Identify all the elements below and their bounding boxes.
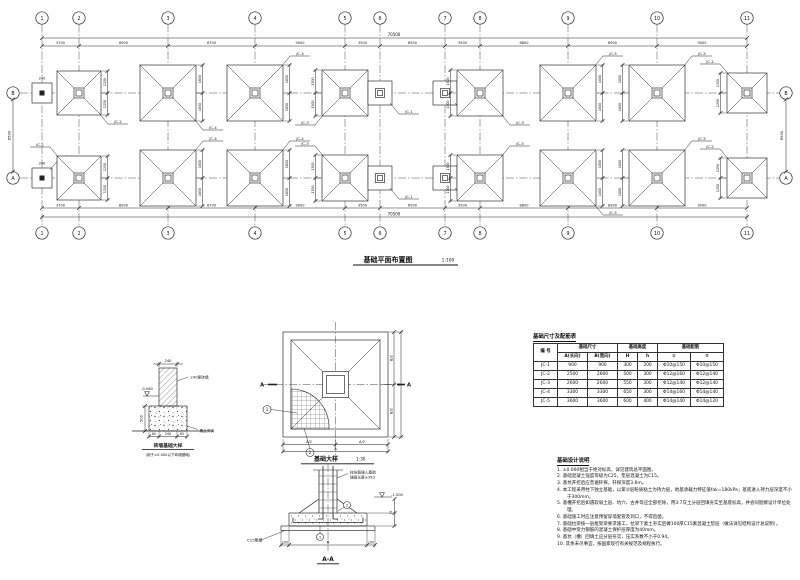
svg-text:240: 240 xyxy=(39,77,45,81)
svg-text:1650: 1650 xyxy=(198,188,202,196)
table-cell: 3600 xyxy=(558,398,588,407)
svg-text:11: 11 xyxy=(744,16,750,22)
svg-text:1800: 1800 xyxy=(598,103,602,111)
col-header-rebar: 基础配筋 xyxy=(658,344,724,353)
footing-table-title: 基础尺寸及配筋表 xyxy=(533,332,576,342)
col-subheader-b: B(宽向) xyxy=(588,353,618,362)
svg-text:1300: 1300 xyxy=(446,185,450,193)
svg-text:1650: 1650 xyxy=(285,188,289,196)
svg-text:1800: 1800 xyxy=(618,160,622,168)
section-callout-1: 1 xyxy=(319,535,321,539)
table-cell: Φ14@160 xyxy=(658,389,691,398)
wall-bottom-dim-1: 60 xyxy=(152,432,156,436)
svg-text:JC-4: JC-4 xyxy=(208,137,217,141)
table-cell: JC-4 xyxy=(534,389,558,398)
svg-text:8900: 8900 xyxy=(608,203,617,207)
col-subheader-H: H xyxy=(618,353,638,362)
table-cell: 3300 xyxy=(558,389,588,398)
svg-text:1300: 1300 xyxy=(446,100,450,108)
svg-text:8700: 8700 xyxy=(207,203,216,207)
table-row: JC-326002600550300Φ12@140Φ12@140 xyxy=(534,380,724,389)
svg-text:JC-1: JC-1 xyxy=(404,110,412,114)
table-cell: 300 xyxy=(638,380,658,389)
svg-text:1800: 1800 xyxy=(618,75,622,83)
note-item: 6. 基础施工时应注意预留穿墙套管及洞口，不得后凿。 xyxy=(557,515,793,522)
table-row: JC-225002600500300Φ12@160Φ12@140 xyxy=(534,371,724,380)
svg-text:1: 1 xyxy=(40,16,43,22)
svg-text:JC-5: JC-5 xyxy=(697,137,706,141)
table-cell: JC-5 xyxy=(534,398,558,407)
table-cell: JC-1 xyxy=(534,362,558,371)
drawing-sheet: 11223344556677889910101111BBAA3700890087… xyxy=(0,0,800,580)
svg-text:5: 5 xyxy=(343,231,346,237)
svg-text:8700: 8700 xyxy=(207,41,216,45)
note-item: 3. 基坑开挖后应普遍钎探，钎探深度3.6m。 xyxy=(557,481,793,488)
svg-text:1650: 1650 xyxy=(285,160,289,168)
svg-text:1800: 1800 xyxy=(618,188,622,196)
svg-text:1800: 1800 xyxy=(598,75,602,83)
svg-text:JC-2: JC-2 xyxy=(705,145,713,149)
detail-caption: 基础大样 xyxy=(313,455,338,463)
svg-text:8800: 8800 xyxy=(520,203,529,207)
note-item: 5. 基槽开挖后如遇软弱土层、坑穴、古井等应全部挖除，用3:7灰土分层回填夯实至… xyxy=(557,501,793,515)
section-caption: A-A xyxy=(322,557,334,563)
svg-text:1300: 1300 xyxy=(446,162,450,170)
table-cell: 300 xyxy=(638,371,658,380)
table-cell: 300 xyxy=(638,389,658,398)
section-column-note-2: 锚固长度≥35d xyxy=(350,475,375,480)
svg-text:JC-3: JC-3 xyxy=(515,121,524,125)
svg-text:JC-2: JC-2 xyxy=(705,60,713,64)
svg-text:3700: 3700 xyxy=(56,41,65,45)
table-cell: 500 xyxy=(618,371,638,380)
detail-callout-2: 2 xyxy=(309,450,312,455)
section-dim-B: B xyxy=(327,540,330,545)
svg-text:1300: 1300 xyxy=(311,185,315,193)
table-cell: Φ10@150 xyxy=(691,362,724,371)
table-cell: Φ12@140 xyxy=(658,380,691,389)
table-row: JC-536003600600400Φ14@140Φ14@120 xyxy=(534,398,724,407)
svg-text:JC-2: JC-2 xyxy=(113,120,121,124)
wall-height-dim: 500 xyxy=(140,414,144,422)
svg-text:8900: 8900 xyxy=(608,41,617,45)
section-mark-right: A xyxy=(407,383,411,389)
svg-text:JC-1: JC-1 xyxy=(404,195,412,199)
table-cell: JC-2 xyxy=(534,371,558,380)
svg-text:JC-2: JC-2 xyxy=(35,143,43,147)
note-item: 2. 基础混凝土强度等级为C25，垫层混凝土为C15。 xyxy=(557,474,793,481)
section-dim-H: H xyxy=(388,511,393,514)
detail-dim-right-1: B/2 xyxy=(390,355,394,361)
note-item: 9. 基坑（槽）回填土应分层夯实，压实系数不小于0.94。 xyxy=(557,535,793,542)
svg-text:JC-5: JC-5 xyxy=(697,52,706,56)
table-cell: 550 xyxy=(618,380,638,389)
svg-text:3: 3 xyxy=(166,231,169,237)
svg-text:1250: 1250 xyxy=(716,164,720,172)
svg-text:JC-5: JC-5 xyxy=(608,211,617,215)
detail-scale: 1:30 xyxy=(356,457,366,462)
svg-text:1250: 1250 xyxy=(103,163,107,171)
table-cell: 2600 xyxy=(588,380,618,389)
plan-title: 基础平面布置图 xyxy=(363,255,413,264)
plan-scale: 1:100 xyxy=(442,258,455,264)
wall-bottom-dim-3: 60 xyxy=(180,432,184,436)
svg-text:9000: 9000 xyxy=(296,41,305,45)
svg-text:3500: 3500 xyxy=(358,203,367,207)
svg-text:8800: 8800 xyxy=(520,41,529,45)
section-column-note-1: 柱纵筋锚入基础 xyxy=(350,470,376,475)
detail-dim-bottom-1: A/2 xyxy=(306,440,312,444)
svg-text:1250: 1250 xyxy=(103,100,107,108)
svg-text:8900: 8900 xyxy=(119,203,128,207)
svg-text:9000: 9000 xyxy=(296,203,305,207)
table-cell: 400 xyxy=(638,398,658,407)
wall-top-dim: 240 xyxy=(165,359,173,363)
svg-text:4: 4 xyxy=(253,16,256,22)
table-cell: Φ14@140 xyxy=(658,398,691,407)
detail-dim-bottom-2: A/2 xyxy=(359,440,365,444)
svg-text:6500: 6500 xyxy=(408,203,417,207)
plan-row-dim-right: 8500 xyxy=(779,130,784,140)
section-dim-100-left: 100 xyxy=(282,540,288,544)
svg-text:1250: 1250 xyxy=(716,79,720,87)
table-cell: 300 xyxy=(618,362,638,371)
table-cell: Φ10@150 xyxy=(658,362,691,371)
wall-detail-caption-note: (用于±0.000以下砖墙基础) xyxy=(146,452,191,457)
table-cell: 2500 xyxy=(558,371,588,380)
table-cell: JC-3 xyxy=(534,380,558,389)
section-mark-left: A xyxy=(260,383,264,389)
wall-ground-note: 素土夯实 xyxy=(200,428,215,433)
col-header-height: 基础高度 xyxy=(618,344,658,353)
svg-text:8900: 8900 xyxy=(119,41,128,45)
svg-text:10: 10 xyxy=(654,231,660,237)
section-bedding-note: C15垫层 xyxy=(247,538,263,543)
col-header-id: 编 号 xyxy=(534,344,558,362)
table-cell: 900 xyxy=(588,362,618,371)
svg-text:6: 6 xyxy=(378,231,381,237)
svg-text:1650: 1650 xyxy=(198,160,202,168)
table-cell: 2600 xyxy=(588,371,618,380)
wall-note: 240厚砖墙 xyxy=(191,374,209,379)
col-subheader-a: A(长向) xyxy=(558,353,588,362)
notes-list: 1. ±0.000相当于绝对标高，详见建筑总平面图。2. 基础混凝土强度等级为C… xyxy=(557,468,793,549)
table-cell: Φ12@160 xyxy=(658,371,691,380)
plan-overall-dim-bottom: 70500 xyxy=(388,212,401,217)
wall-bottom-dim-2: 240 xyxy=(165,432,171,436)
svg-text:B: B xyxy=(11,91,14,97)
svg-text:3500: 3500 xyxy=(358,41,367,45)
note-item: 10. 其余未尽事宜，按国家现行有关规范及规程执行。 xyxy=(557,542,793,549)
svg-text:JC-3: JC-3 xyxy=(515,142,524,146)
svg-text:JC-3: JC-3 xyxy=(300,142,309,146)
svg-text:JC-4: JC-4 xyxy=(208,126,217,130)
svg-text:11: 11 xyxy=(744,231,750,237)
svg-text:6: 6 xyxy=(378,16,381,22)
table-cell: Φ14@120 xyxy=(691,398,724,407)
svg-text:8: 8 xyxy=(478,231,481,237)
note-item: 4. 本工程采用柱下独立基础，以第②层粉质粘土为持力层，地基承载力特征值fak=… xyxy=(557,488,793,502)
svg-text:B: B xyxy=(784,91,787,97)
svg-text:2: 2 xyxy=(77,231,80,237)
svg-text:1300: 1300 xyxy=(311,100,315,108)
svg-text:1800: 1800 xyxy=(598,188,602,196)
detail-callout-1: 1 xyxy=(266,407,269,412)
section-level-value: -1.500 xyxy=(391,493,404,497)
table-cell: 2600 xyxy=(558,380,588,389)
table-cell: Φ12@140 xyxy=(691,371,724,380)
col-subheader-h: h xyxy=(638,353,658,362)
svg-text:1800: 1800 xyxy=(618,103,622,111)
table-cell: 600 xyxy=(618,398,638,407)
detail-dim-right-overall: B xyxy=(396,383,401,386)
svg-text:JC-4: JC-4 xyxy=(295,52,304,56)
svg-text:240: 240 xyxy=(39,162,45,166)
table-cell: 3600 xyxy=(588,398,618,407)
svg-text:1250: 1250 xyxy=(103,185,107,193)
col-header-size: 基础尺寸 xyxy=(558,344,618,353)
table-cell: Φ14@140 xyxy=(691,389,724,398)
table-row: JC-433003300650300Φ14@160Φ14@140 xyxy=(534,389,724,398)
table-header: 编 号 基础尺寸 基础高度 基础配筋 A(长向) B(宽向) H h ① ② xyxy=(534,344,724,362)
table-cell: 3300 xyxy=(588,389,618,398)
table-cell: 200 xyxy=(638,362,658,371)
col-subheader-rebar2: ② xyxy=(691,353,724,362)
wall-detail-caption: 砖墙基础大样 xyxy=(154,442,183,449)
svg-text:1: 1 xyxy=(40,231,43,237)
svg-text:2: 2 xyxy=(77,16,80,22)
svg-text:3700: 3700 xyxy=(56,203,65,207)
table-row: JC-1900900300200Φ10@150Φ10@150 xyxy=(534,362,724,371)
svg-text:1650: 1650 xyxy=(198,75,202,83)
wall-level-value: -0.060 xyxy=(141,387,153,391)
svg-text:9000: 9000 xyxy=(698,41,707,45)
design-notes: 基础设计说明 1. ±0.000相当于绝对标高，详见建筑总平面图。2. 基础混凝… xyxy=(557,447,793,549)
svg-text:1250: 1250 xyxy=(716,184,720,192)
svg-text:3500: 3500 xyxy=(458,41,467,45)
svg-text:9: 9 xyxy=(566,16,569,22)
svg-text:8: 8 xyxy=(478,16,481,22)
svg-text:JC-5: JC-5 xyxy=(608,52,617,56)
svg-text:7: 7 xyxy=(443,231,446,237)
svg-text:9000: 9000 xyxy=(698,203,707,207)
col-subheader-rebar1: ① xyxy=(658,353,691,362)
svg-text:3: 3 xyxy=(166,16,169,22)
svg-text:1300: 1300 xyxy=(446,77,450,85)
svg-text:10: 10 xyxy=(654,16,660,22)
svg-text:1650: 1650 xyxy=(198,103,202,111)
svg-text:7: 7 xyxy=(443,16,446,22)
footing-schedule-table: 编 号 基础尺寸 基础高度 基础配筋 A(长向) B(宽向) H h ① ② J… xyxy=(533,343,724,407)
svg-text:1250: 1250 xyxy=(716,99,720,107)
svg-text:1650: 1650 xyxy=(285,75,289,83)
svg-text:1300: 1300 xyxy=(311,162,315,170)
svg-text:1250: 1250 xyxy=(103,78,107,86)
svg-text:1650: 1650 xyxy=(285,103,289,111)
svg-text:1800: 1800 xyxy=(598,160,602,168)
plan-overall-dim-top: 70500 xyxy=(388,32,401,37)
svg-text:5: 5 xyxy=(343,16,346,22)
svg-text:6500: 6500 xyxy=(408,41,417,45)
svg-text:9: 9 xyxy=(566,231,569,237)
svg-text:1300: 1300 xyxy=(311,77,315,85)
svg-text:JC-3: JC-3 xyxy=(300,121,309,125)
table-cell: Φ12@140 xyxy=(691,380,724,389)
note-item: 8. 基础中受力钢筋的混凝土保护层厚度为40mm。 xyxy=(557,528,793,535)
svg-text:JC-4: JC-4 xyxy=(295,137,304,141)
detail-dim-bottom-overall: A xyxy=(334,446,337,451)
detail-dim-right-2: B/2 xyxy=(390,408,394,414)
svg-text:4: 4 xyxy=(253,231,256,237)
table-cell: 900 xyxy=(558,362,588,371)
table-cell: 650 xyxy=(618,389,638,398)
section-dim-100-right: 100 xyxy=(368,540,374,544)
plan-row-dim-left: 8500 xyxy=(7,130,12,140)
notes-title: 基础设计说明 xyxy=(557,456,589,466)
section-callout-2: 2 xyxy=(346,503,348,507)
svg-text:3500: 3500 xyxy=(458,203,467,207)
